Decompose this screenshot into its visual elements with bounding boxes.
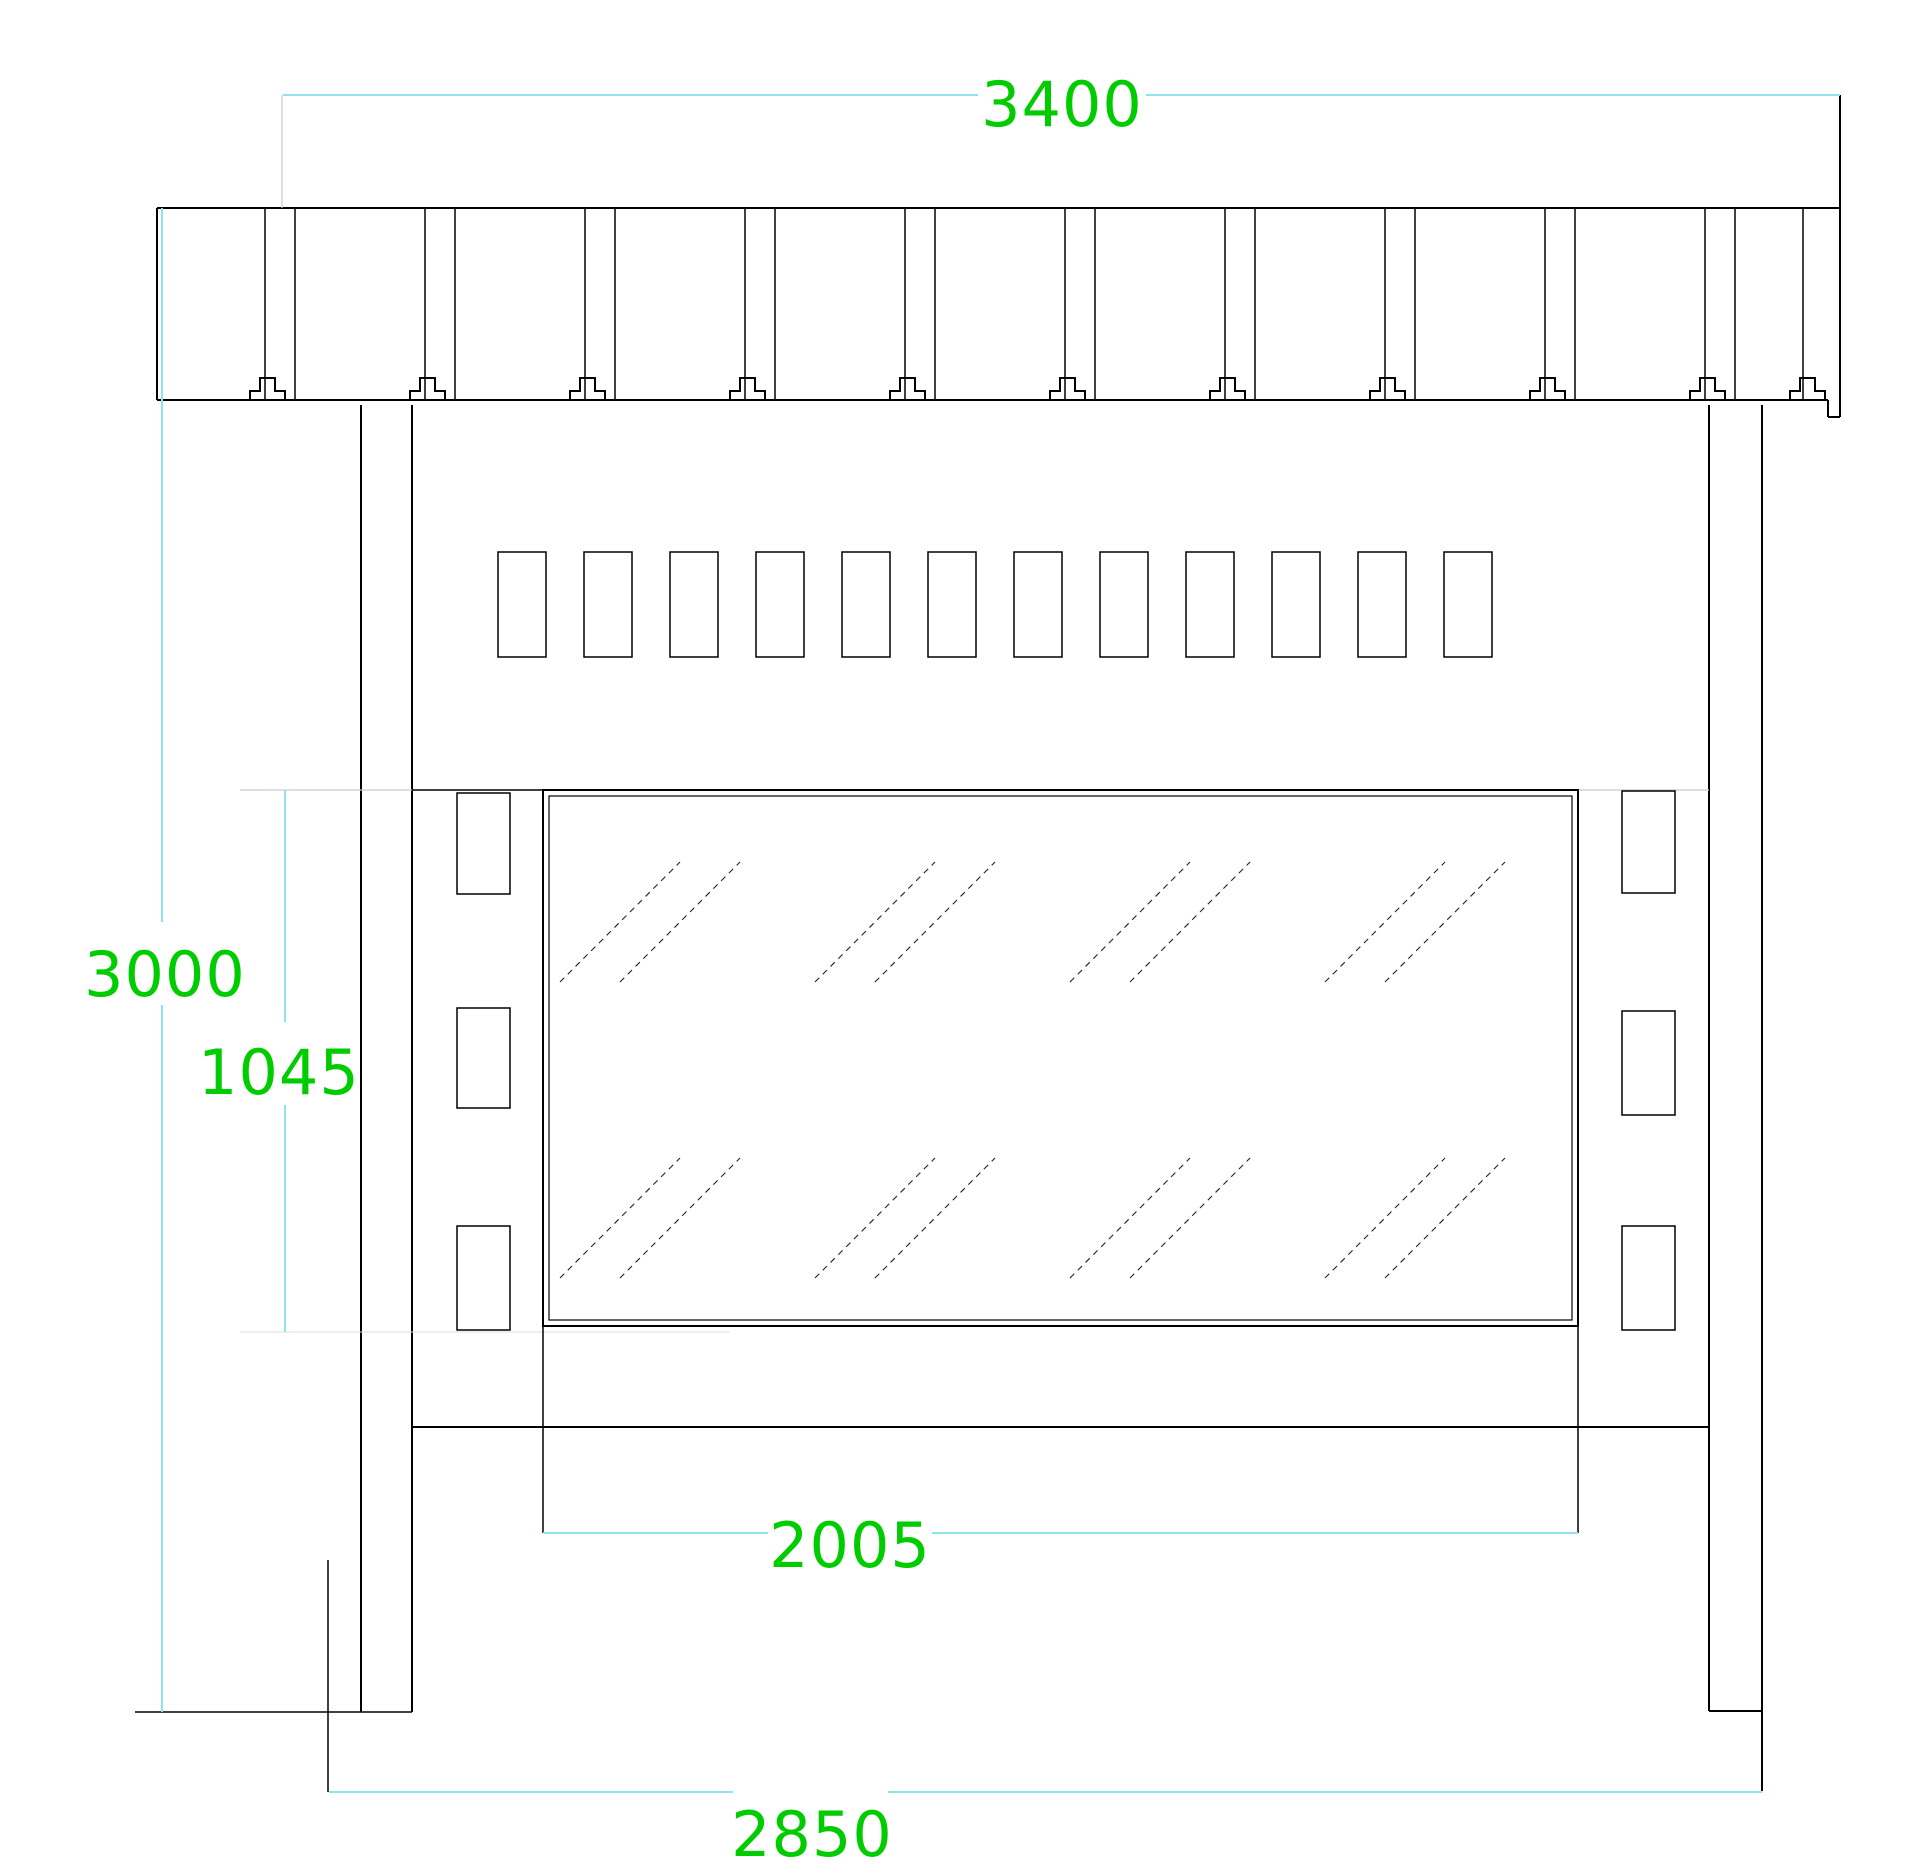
rect [1014,552,1062,657]
notch [730,378,765,400]
rect [842,552,890,657]
notch [1370,378,1405,400]
line [1130,1158,1250,1278]
rect [1444,552,1492,657]
rect [1622,1226,1675,1330]
notch [410,378,445,400]
rect [1622,1011,1675,1115]
rect [457,1226,510,1330]
glass-panel [543,790,1578,1326]
notch [1790,378,1825,400]
rect [543,790,1578,1326]
rect [498,552,546,657]
line [1385,1158,1505,1278]
notch [1050,378,1085,400]
notch [250,378,285,400]
rect [756,552,804,657]
rect [1100,552,1148,657]
rect [928,552,976,657]
line [620,862,740,982]
line [815,1158,935,1278]
canopy-band [157,95,1840,417]
line [875,1158,995,1278]
elevation-drawing: 3400 3000 1045 2005 2850 [0,0,1920,1873]
line [560,862,680,982]
notch [570,378,605,400]
cad-canvas: 3400 3000 1045 2005 2850 [0,0,1920,1873]
notch [1210,378,1245,400]
dim-panel-height: 1045 [198,1036,360,1109]
support-posts [135,405,1762,1792]
panel-frame [240,790,1709,1427]
notch [1530,378,1565,400]
dimension-lines [162,95,1840,1792]
line [815,862,935,982]
notch [890,378,925,400]
rect [1622,791,1675,893]
rect [670,552,718,657]
rect [1186,552,1234,657]
line [1385,862,1505,982]
rect [1272,552,1320,657]
line [1070,862,1190,982]
line [1130,862,1250,982]
dim-base-width: 2850 [731,1798,893,1871]
line [1070,1158,1190,1278]
notch [1690,378,1725,400]
line [1325,862,1445,982]
dim-overall-height: 3000 [84,938,246,1011]
rect [549,796,1572,1320]
rect [457,1008,510,1108]
rect [584,552,632,657]
dim-panel-width: 2005 [769,1509,931,1582]
rect [1358,552,1406,657]
line [620,1158,740,1278]
line [1325,1158,1445,1278]
dim-canopy-width: 3400 [981,68,1143,141]
rect [457,793,510,894]
louver-row [498,552,1492,657]
line [560,1158,680,1278]
line [875,862,995,982]
